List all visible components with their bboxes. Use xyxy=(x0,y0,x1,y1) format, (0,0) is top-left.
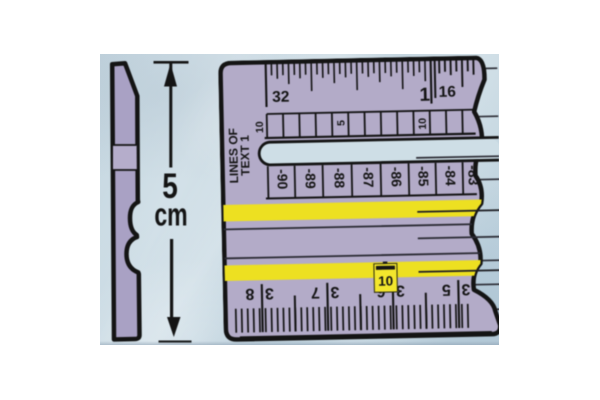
svg-text:-85: -85 xyxy=(415,165,431,186)
svg-text:7: 7 xyxy=(310,283,319,300)
svg-text:3: 3 xyxy=(330,283,339,300)
svg-text:-88: -88 xyxy=(331,167,347,188)
svg-text:10: 10 xyxy=(416,117,428,129)
svg-text:1: 1 xyxy=(419,84,430,105)
svg-text:LINES OFTEXT 1: LINES OFTEXT 1 xyxy=(225,127,252,183)
svg-text:-89: -89 xyxy=(302,168,318,189)
svg-text:-90: -90 xyxy=(274,168,290,189)
svg-text:10: 10 xyxy=(378,273,393,288)
svg-text:-83: -83 xyxy=(465,164,481,185)
svg-text:5: 5 xyxy=(441,280,450,297)
svg-text:8: 8 xyxy=(245,284,254,301)
svg-text:32: 32 xyxy=(272,88,290,105)
svg-text:3: 3 xyxy=(461,280,470,297)
svg-text:16: 16 xyxy=(438,83,456,100)
svg-text:3: 3 xyxy=(264,284,273,301)
svg-text:10: 10 xyxy=(253,121,265,133)
svg-text:5: 5 xyxy=(335,119,347,125)
svg-text:-86: -86 xyxy=(388,166,404,187)
svg-text:-87: -87 xyxy=(360,167,376,188)
svg-text:-84: -84 xyxy=(442,165,458,186)
